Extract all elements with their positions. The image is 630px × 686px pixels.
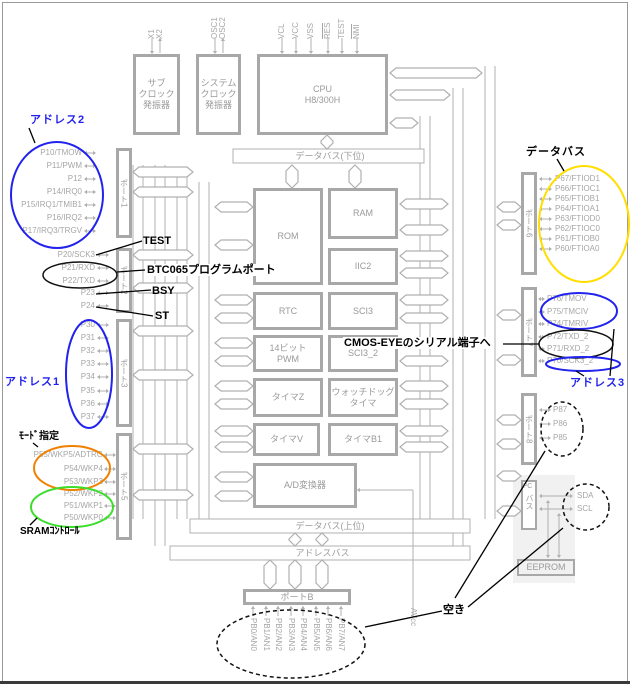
eeprom-block: EEPROM (517, 559, 575, 576)
port3-label: ポート3 (116, 319, 132, 427)
adc-block: A/D変換器 (253, 463, 357, 508)
avcc-pin-label: AVcc (408, 608, 418, 652)
annotation-mode: ﾓｰﾄﾞ指定 (19, 431, 59, 443)
watchdog-timer-block: ウォッチドッグ タイマ (328, 378, 398, 417)
i2c-label-body: バス (524, 494, 535, 510)
cpu-block: CPU H8/300H (257, 54, 388, 135)
annotation-address3: アドレス3 (570, 377, 625, 389)
portb-pin-label: PB4/AN4 (298, 618, 308, 662)
iic2-block: IIC2 (328, 248, 398, 285)
rtc-block: RTC (253, 292, 323, 330)
pin-vss: VSS (306, 3, 316, 39)
timer-b1-block: タイマB1 (328, 423, 398, 456)
pwm14-block: 14ビット PWM (253, 335, 323, 372)
portb-pin-label: PB1/AN1 (261, 618, 271, 662)
ram-block: RAM (328, 188, 398, 239)
port7-label: ポート7 (521, 287, 537, 377)
annotation-unused: 空き (443, 604, 465, 616)
port8-label: ポート8 (521, 393, 537, 465)
port5-label: ポート5 (116, 433, 132, 540)
pin-osc2: OSC2 (218, 3, 228, 39)
databus-lower-label: データバス(下位) (270, 149, 390, 163)
annotation-cmos-eye-serial: CMOS-EYEのシリアル端子へ (343, 337, 492, 349)
pin-vcc: VCC (291, 3, 301, 39)
annotation-address1: アドレス1 (5, 376, 60, 388)
port1-label: ポート1 (116, 148, 132, 238)
annotation-test: TEST (143, 235, 171, 247)
annotation-databus: データバス (526, 146, 586, 158)
pin-vcl: VCL (277, 3, 287, 39)
timer-z-block: タイマZ (253, 378, 323, 417)
i2c-label-top: I²C (523, 483, 532, 490)
pin-nmi: NMI (352, 3, 362, 39)
addressbus-label: アドレスバス (265, 546, 380, 560)
sci3-block: SCI3 (328, 292, 398, 330)
portb-block: ポートB (243, 589, 351, 605)
pin-res: RES (323, 3, 333, 39)
system-clock-oscillator-block: システム クロック 発振器 (196, 54, 241, 135)
databus-upper-label: データバス(上位) (270, 519, 390, 533)
annotation-address2: アドレス2 (30, 114, 85, 126)
timer-v-block: タイマV (253, 423, 320, 456)
block-diagram: サブ クロック 発振器 システム クロック 発振器 CPU H8/300H RO… (0, 0, 630, 686)
subclock-oscillator-block: サブ クロック 発振器 (133, 54, 180, 135)
annotation-sram-control: SRAMｺﾝﾄﾛｰﾙ (20, 526, 79, 538)
annotation-bsy: BSY (152, 285, 175, 297)
port2-label: ポート2 (116, 248, 132, 313)
pin-test: TEST (337, 3, 347, 39)
annotation-program-port: BTC065プログラムポート (146, 264, 277, 276)
pin-x2: X2 (155, 3, 165, 39)
annotation-st: ST (155, 310, 169, 322)
portb-pin-label: PB0/AN0 (248, 618, 258, 662)
portb-pin-label: PB6/AN6 (323, 618, 333, 662)
portb-pin-label: PB5/AN5 (311, 618, 321, 662)
portb-pin-label: PB7/AN7 (336, 618, 346, 662)
portb-pin-label: PB2/AN2 (273, 618, 283, 662)
portb-pin-label: PB3/AN3 (286, 618, 296, 662)
port6-label: ポート6 (521, 172, 537, 275)
